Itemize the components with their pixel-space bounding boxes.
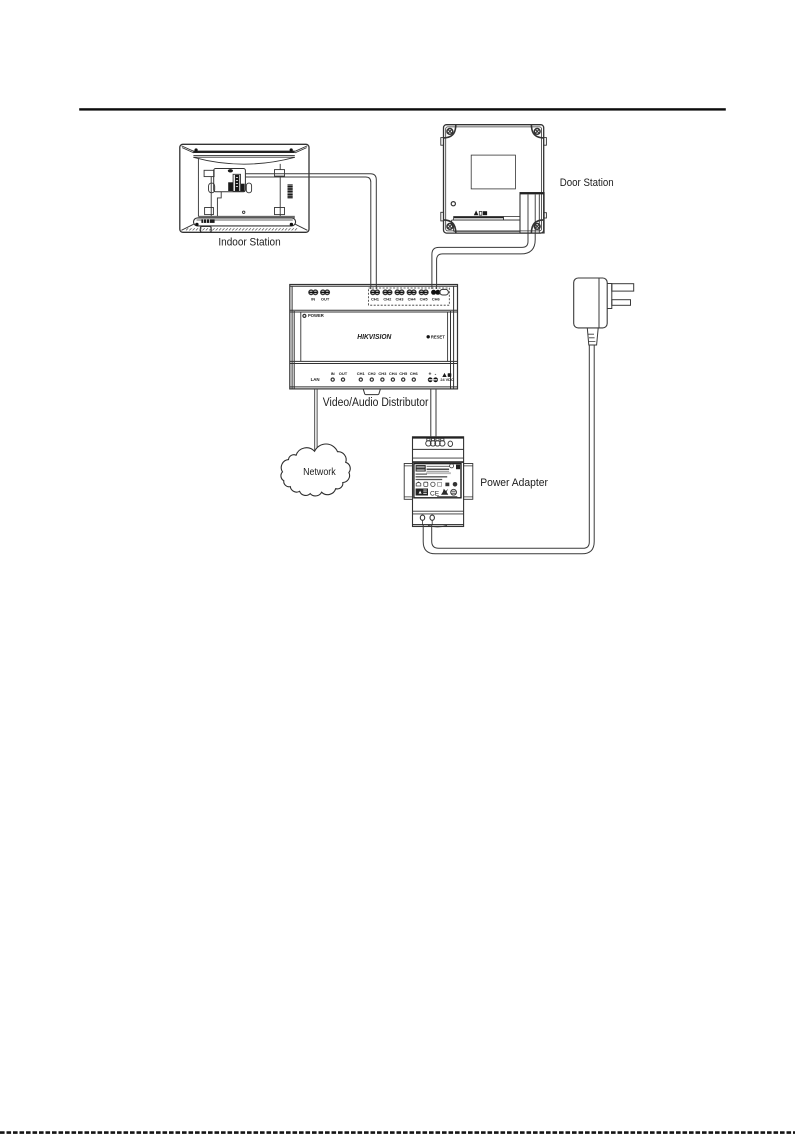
svg-text:CH3: CH3 bbox=[395, 297, 404, 302]
svg-text:Video/Audio Distributor: Video/Audio Distributor bbox=[323, 397, 429, 409]
svg-text:Power Adapter: Power Adapter bbox=[480, 477, 548, 489]
svg-text:OUT: OUT bbox=[321, 297, 330, 302]
svg-text:CH6: CH6 bbox=[410, 371, 419, 376]
svg-text:24 VDC: 24 VDC bbox=[440, 378, 454, 382]
svg-text:CH2: CH2 bbox=[383, 297, 392, 302]
svg-text:LAN: LAN bbox=[311, 377, 320, 382]
svg-text:CH4: CH4 bbox=[408, 297, 417, 302]
svg-text:HIKVISION: HIKVISION bbox=[357, 332, 392, 341]
svg-text:CH4: CH4 bbox=[389, 371, 398, 376]
svg-text:CH5: CH5 bbox=[420, 297, 429, 302]
svg-text:IN: IN bbox=[311, 297, 315, 302]
svg-text:CH5: CH5 bbox=[399, 371, 408, 376]
svg-text:CH6: CH6 bbox=[432, 297, 441, 302]
svg-text:CH1: CH1 bbox=[357, 371, 366, 376]
svg-text:CH2: CH2 bbox=[368, 371, 377, 376]
svg-text:CH3: CH3 bbox=[378, 371, 387, 376]
svg-text:Indoor Station: Indoor Station bbox=[218, 237, 280, 249]
svg-text:POWER: POWER bbox=[308, 313, 324, 318]
svg-text:+: + bbox=[429, 372, 432, 378]
svg-text:CH1: CH1 bbox=[371, 297, 380, 302]
svg-text:Network: Network bbox=[303, 467, 336, 478]
svg-text:OUT: OUT bbox=[339, 371, 348, 376]
svg-text:RESET: RESET bbox=[431, 335, 445, 340]
svg-text:Door Station: Door Station bbox=[560, 177, 614, 189]
svg-text:IN: IN bbox=[331, 371, 335, 376]
